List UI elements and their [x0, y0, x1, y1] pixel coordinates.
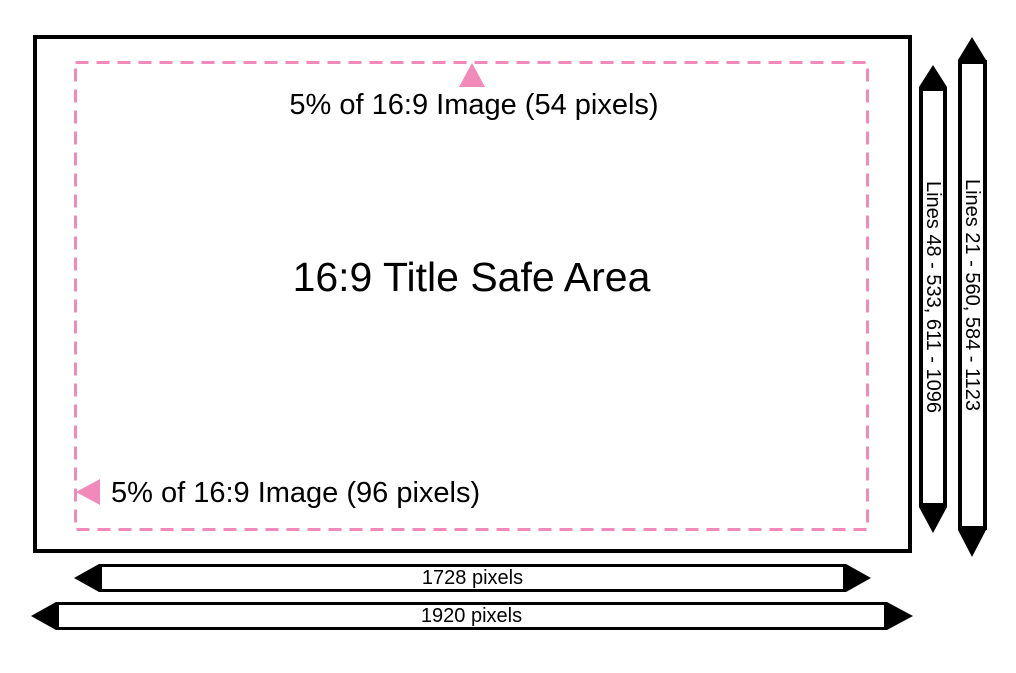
- safe-lines-label: Lines 48 - 533, 611 - 1096: [923, 181, 943, 413]
- left-margin-label: 5% of 16:9 Image (96 pixels): [111, 478, 480, 508]
- full-width-right-arrow-icon: [887, 602, 913, 630]
- full-width-ruler: 1920 pixels: [56, 602, 887, 630]
- safe-width-ruler: 1728 pixels: [99, 564, 846, 592]
- safe-width-right-arrow-icon: [846, 564, 871, 592]
- full-width-left-arrow-icon: [31, 602, 56, 630]
- full-lines-label: Lines 21 - 560, 584 - 1123: [962, 179, 982, 411]
- safe-lines-down-arrow-icon: [919, 507, 947, 533]
- full-width-label: 1920 pixels: [421, 605, 522, 627]
- top-margin-label: 5% of 16:9 Image (54 pixels): [174, 90, 774, 120]
- safe-width-left-arrow-icon: [74, 564, 99, 592]
- safe-lines-up-arrow-icon: [919, 65, 947, 87]
- left-margin-arrow-icon: [76, 479, 100, 505]
- page-title: 16:9 Title Safe Area: [75, 255, 868, 299]
- full-lines-down-arrow-icon: [958, 530, 986, 557]
- safe-width-label: 1728 pixels: [422, 567, 523, 589]
- top-margin-arrow-icon: [459, 63, 485, 87]
- full-lines-up-arrow-icon: [958, 37, 986, 60]
- title-safe-diagram: 16:9 Title Safe Area 5% of 16:9 Image (5…: [0, 0, 1016, 673]
